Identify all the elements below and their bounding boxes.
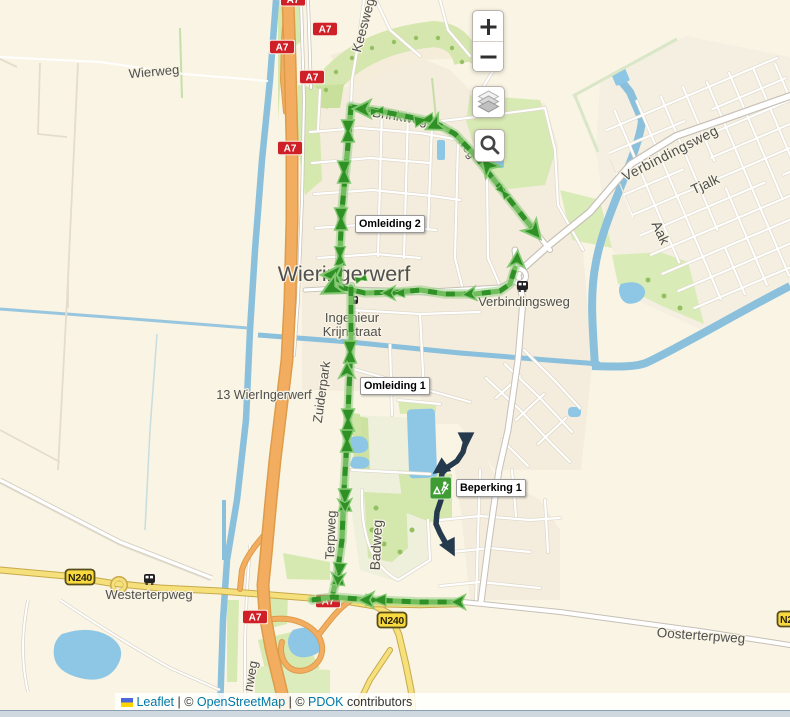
- svg-text:Badweg: Badweg: [367, 519, 386, 570]
- svg-text:Oosterterpweg: Oosterterpweg: [656, 625, 745, 646]
- svg-text:A7: A7: [306, 72, 319, 83]
- svg-text:A7: A7: [276, 42, 289, 53]
- svg-text:A7: A7: [319, 24, 332, 35]
- svg-text:A7: A7: [249, 612, 262, 623]
- svg-text:A7: A7: [284, 143, 297, 154]
- svg-text:Wierweg: Wierweg: [128, 62, 180, 81]
- svg-text:13 WierIngerwerf: 13 WierIngerwerf: [216, 388, 312, 402]
- svg-text:A7: A7: [287, 0, 300, 6]
- svg-text:N240: N240: [68, 572, 92, 584]
- svg-text:N240: N240: [380, 615, 404, 627]
- svg-text:Westerterpweg: Westerterpweg: [105, 587, 192, 602]
- svg-text:N240: N240: [780, 614, 790, 626]
